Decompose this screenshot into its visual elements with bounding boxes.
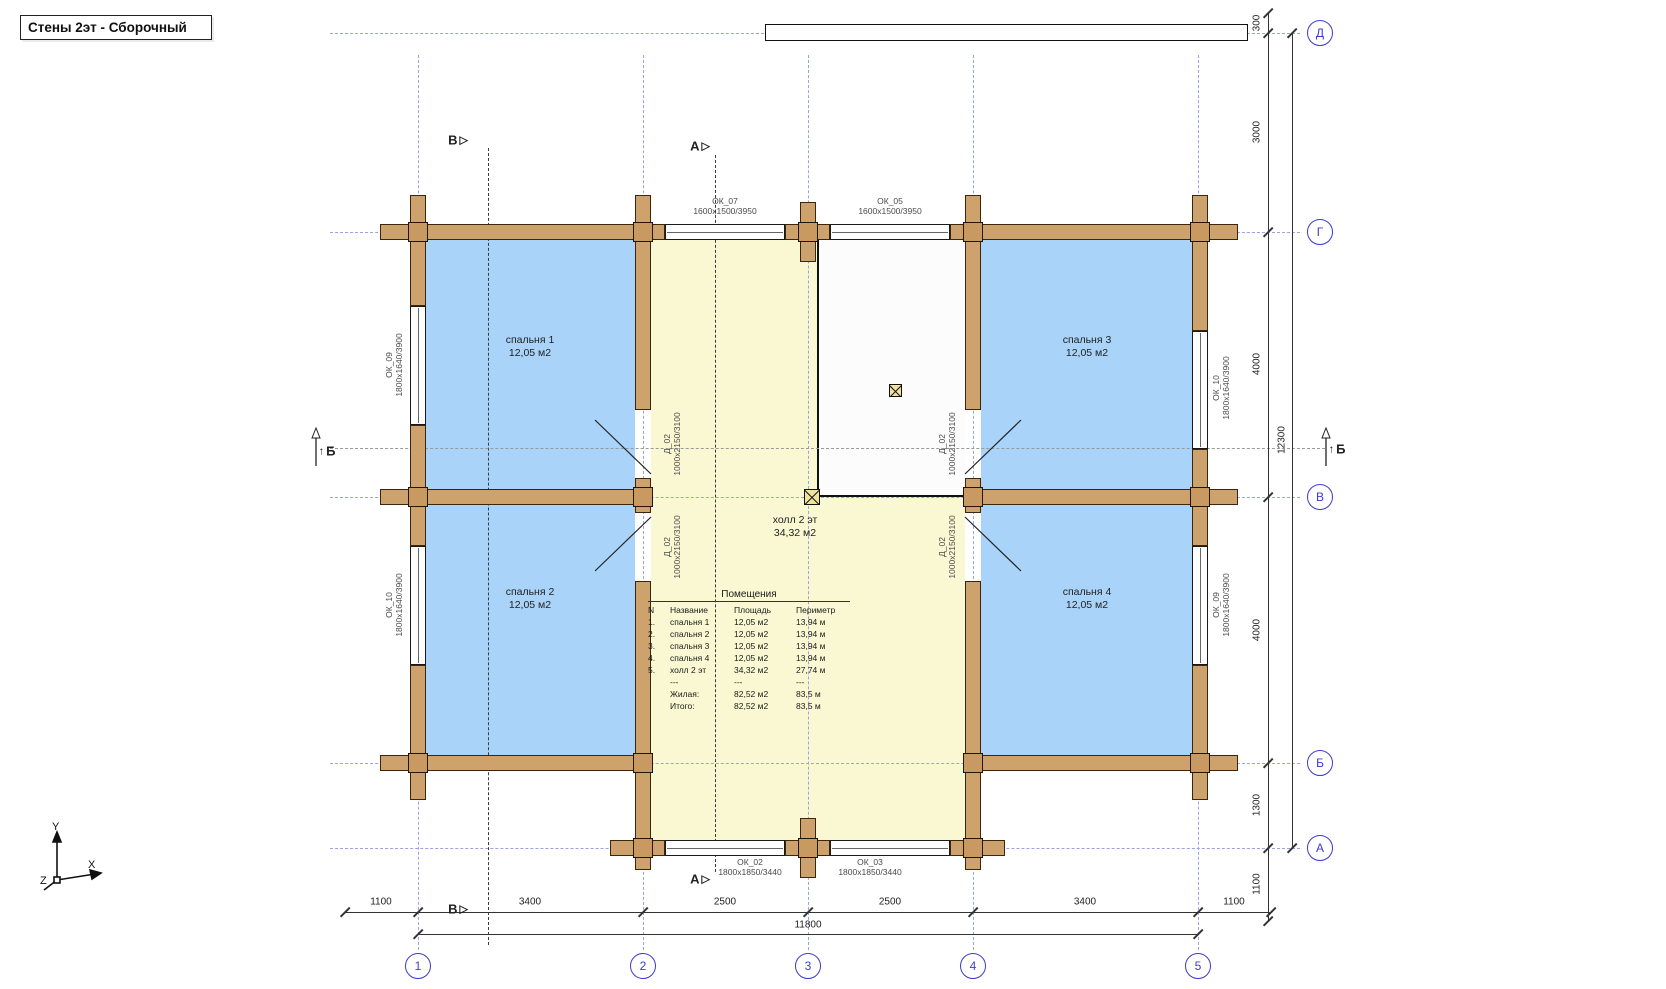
ucs-x-arrowhead [90, 870, 101, 879]
section-line-a [715, 155, 716, 872]
wall-beam-top [765, 24, 1248, 41]
table-row: 5. холл 2 эт 34,32 м2 27,74 м [648, 664, 850, 676]
section-marker-a-top: А ▷ [690, 139, 710, 154]
ucs-y-label: Y [52, 821, 60, 833]
cell-area: 82,52 м2 [734, 688, 796, 700]
dim-value: 1100 [370, 897, 392, 908]
axis-letter: В [1316, 490, 1324, 504]
cell-num: 2. [648, 628, 670, 640]
axis-number: 4 [970, 959, 977, 973]
ucs-y-arrowhead [53, 832, 61, 842]
door-id: Д_02 [937, 515, 947, 578]
ucs-x-axis [57, 874, 95, 880]
axis-letter: А [1316, 841, 1324, 855]
ucs-z-axis [44, 880, 57, 890]
cell-perimeter: 83,5 м [796, 700, 850, 712]
drawing-canvas: Стены 2эт - Сборочный [0, 0, 1666, 989]
axis-bubble-1: 1 [405, 953, 431, 979]
table-row: 4. спальня 4 12,05 м2 13,94 м [648, 652, 850, 664]
cell-name: спальня 3 [670, 640, 734, 652]
log-crossing [963, 753, 983, 773]
window-ok10-left [410, 546, 426, 665]
window-id: ОК_07 [693, 196, 756, 206]
wall-segment [410, 665, 426, 800]
cell-area: 82,52 м2 [734, 700, 796, 712]
up-arrow-icon: ↑ [319, 445, 325, 457]
window-id: ОК_03 [838, 857, 901, 867]
section-line-b [330, 448, 1325, 449]
section-arrow-icon: ▷ [701, 873, 709, 886]
room-name: спальня 2 [506, 586, 555, 599]
section-letter: В [448, 133, 457, 148]
log-crossing [633, 222, 653, 242]
door-label: Д_02 1000х2150/3100 [937, 412, 957, 475]
dim-total-value: 11800 [794, 920, 821, 931]
window-size: 1800х1640/3900 [394, 573, 404, 636]
section-letter: А [690, 139, 699, 154]
door-size: 1000х2150/3100 [947, 515, 957, 578]
window-ok05 [830, 224, 950, 240]
col-header-area: Площадь [734, 604, 796, 616]
room-bedroom-2 [426, 505, 635, 755]
cell-perimeter: 83,5 м [796, 688, 850, 700]
section-line-v [488, 148, 489, 945]
window-size: 1800х1850/3440 [718, 867, 781, 877]
log-crossing [408, 222, 428, 242]
section-marker-b-left: ↑ Б [319, 444, 336, 459]
room-bedroom-3 [981, 240, 1192, 489]
room-label-bedroom-2: спальня 2 12,05 м2 [506, 586, 555, 612]
table-row: 1. спальня 1 12,05 м2 13,94 м [648, 616, 850, 628]
window-label-ok09-left: ОК_09 1800х1640/3900 [384, 333, 404, 396]
dim-value: 2500 [714, 897, 736, 908]
axis-number: 1 [415, 959, 422, 973]
door-id: Д_02 [937, 412, 947, 475]
cell-area: 12,05 м2 [734, 652, 796, 664]
log-crossing [1190, 753, 1210, 773]
window-ok07 [665, 224, 785, 240]
log-crossing [963, 838, 983, 858]
axis-bubble-5: 5 [1185, 953, 1211, 979]
room-label-bedroom-4: спальня 4 12,05 м2 [1063, 586, 1112, 612]
axis-bubble-a: А [1307, 835, 1333, 861]
log-crossing [798, 838, 818, 858]
cell-num [648, 700, 670, 712]
table-row: 2. спальня 2 12,05 м2 13,94 м [648, 628, 850, 640]
room-bedroom-4 [981, 505, 1192, 755]
cell-num [648, 688, 670, 700]
section-letter: А [690, 872, 699, 887]
cell-area: 12,05 м2 [734, 628, 796, 640]
cell-num: 5. [648, 664, 670, 676]
room-label-bedroom-1: спальня 1 12,05 м2 [506, 334, 555, 360]
window-id: ОК_10 [1211, 356, 1221, 419]
window-label-ok05: ОК_05 1600х1500/3950 [858, 196, 921, 216]
window-id: ОК_09 [1211, 573, 1221, 636]
col-header-num: N [648, 604, 670, 616]
window-id: ОК_10 [384, 573, 394, 636]
window-ok03 [830, 840, 950, 856]
ucs-icon [44, 832, 101, 890]
window-label-ok10-right: ОК_10 1800х1640/3900 [1211, 356, 1231, 419]
door-label: Д_02 1000х2150/3100 [937, 515, 957, 578]
door-size: 1000х2150/3100 [672, 412, 682, 475]
cell-perimeter: 13,94 м [796, 652, 850, 664]
room-area: 12,05 м2 [506, 347, 555, 360]
axis-bubble-3: 3 [795, 953, 821, 979]
log-crossing [633, 487, 653, 507]
axis-number: 3 [805, 959, 812, 973]
log-crossing [1190, 487, 1210, 507]
window-size: 1800х1640/3900 [1221, 356, 1231, 419]
log-crossing [633, 838, 653, 858]
wall-segment [410, 425, 426, 546]
dim-line-right-total [1292, 33, 1293, 848]
cell-perimeter: 27,74 м [796, 664, 850, 676]
axis-bubble-4: 4 [960, 953, 986, 979]
cell-num [648, 676, 670, 688]
door-size: 1000х2150/3100 [672, 515, 682, 578]
room-name: холл 2 эт [773, 514, 818, 527]
cell-num: 3. [648, 640, 670, 652]
room-area: 34,32 м2 [773, 527, 818, 540]
log-crossing [963, 222, 983, 242]
window-size: 1800х1640/3900 [394, 333, 404, 396]
cell-name: --- [670, 676, 734, 688]
cell-perimeter: 13,94 м [796, 616, 850, 628]
cell-name: спальня 2 [670, 628, 734, 640]
axis-bubble-g: Г [1307, 219, 1333, 245]
column-marker [804, 489, 820, 505]
door-id: Д_02 [662, 515, 672, 578]
dim-line-right [1268, 13, 1269, 921]
room-name: спальня 1 [506, 334, 555, 347]
axis-number: 2 [640, 959, 647, 973]
room-area: 12,05 м2 [506, 599, 555, 612]
table-row-total-living: Жилая: 82,52 м2 83,5 м [648, 688, 850, 700]
col-header-perimeter: Периметр [796, 604, 850, 616]
cell-name: спальня 4 [670, 652, 734, 664]
window-ok10-right [1192, 331, 1208, 449]
log-crossing [408, 753, 428, 773]
section-b-arrowhead [1322, 428, 1330, 438]
section-marker-v-top: В ▷ [448, 133, 468, 148]
section-marker-b-right: ↑ Б [1329, 442, 1346, 457]
axis-letter: Г [1317, 225, 1324, 239]
table-row: 3. спальня 3 12,05 м2 13,94 м [648, 640, 850, 652]
log-crossing [1190, 222, 1210, 242]
window-size: 1600х1500/3950 [858, 206, 921, 216]
door-size: 1000х2150/3100 [947, 412, 957, 475]
wall-segment [1192, 195, 1208, 331]
door-label: Д_02 1000х2150/3100 [662, 412, 682, 475]
dim-value: 3400 [1074, 897, 1096, 908]
log-crossing [633, 753, 653, 773]
table-header-row: N Название Площадь Периметр [648, 604, 850, 616]
room-label-hall: холл 2 эт 34,32 м2 [773, 514, 818, 540]
section-letter: Б [326, 444, 335, 459]
section-marker-a-bottom: А ▷ [690, 872, 710, 887]
cell-name: спальня 1 [670, 616, 734, 628]
room-area: 12,05 м2 [1063, 347, 1112, 360]
dim-value: 1100 [1252, 873, 1263, 895]
col-header-name: Название [670, 604, 734, 616]
cell-num: 4. [648, 652, 670, 664]
log-crossing [798, 222, 818, 242]
column-marker [889, 384, 902, 397]
window-size: 1800х1640/3900 [1221, 573, 1231, 636]
cell-perimeter: 13,94 м [796, 628, 850, 640]
room-name: спальня 3 [1063, 334, 1112, 347]
cell-num: 1. [648, 616, 670, 628]
window-ok09-left [410, 306, 426, 425]
table-row: --- --- --- [648, 676, 850, 688]
wall-segment [965, 581, 981, 870]
ucs-z-label: Z [40, 875, 47, 887]
section-letter: Б [1336, 442, 1345, 457]
room-bedroom-1 [426, 240, 635, 489]
dim-line-bottom-total [418, 934, 1198, 935]
window-label-ok10-left: ОК_10 1800х1640/3900 [384, 573, 404, 636]
dim-value: 3000 [1252, 121, 1263, 143]
dim-value: 3400 [519, 897, 541, 908]
axis-bubble-d: Д [1307, 20, 1333, 46]
window-ok02 [665, 840, 785, 856]
window-label-ok07: ОК_07 1600х1500/3950 [693, 196, 756, 216]
section-arrow-icon: ▷ [459, 903, 467, 916]
cell-area: 12,05 м2 [734, 640, 796, 652]
cell-area: 34,32 м2 [734, 664, 796, 676]
axis-bubble-v: В [1307, 484, 1333, 510]
room-schedule-table: Помещения N Название Площадь Периметр 1.… [648, 589, 850, 712]
table-rule [648, 601, 850, 602]
dim-total-value: 12300 [1277, 426, 1288, 454]
window-label-ok02: ОК_02 1800х1850/3440 [718, 857, 781, 877]
window-id: ОК_05 [858, 196, 921, 206]
view-title: Стены 2эт - Сборочный [20, 15, 212, 40]
section-arrow-icon: ▷ [459, 134, 467, 147]
axis-letter: Б [1316, 756, 1324, 770]
cell-name: холл 2 эт [670, 664, 734, 676]
section-letter: В [448, 902, 457, 917]
section-marker-v-bottom: В ▷ [448, 902, 468, 917]
up-arrow-icon: ↑ [1329, 443, 1335, 455]
wall-segment [1192, 665, 1208, 800]
axis-bubble-2: 2 [630, 953, 656, 979]
cell-perimeter: --- [796, 676, 850, 688]
room-name: спальня 4 [1063, 586, 1112, 599]
dim-value: 2500 [879, 897, 901, 908]
table-row-total: Итого: 82,52 м2 83,5 м [648, 700, 850, 712]
room-area: 12,05 м2 [1063, 599, 1112, 612]
door-id: Д_02 [662, 412, 672, 475]
ucs-origin [54, 877, 60, 883]
window-id: ОК_02 [718, 857, 781, 867]
dim-value: 1300 [1252, 794, 1263, 816]
axis-bubble-b: Б [1307, 750, 1333, 776]
section-arrow-icon: ▷ [701, 140, 709, 153]
door-label: Д_02 1000х2150/3100 [662, 515, 682, 578]
log-crossing [963, 487, 983, 507]
axis-letter: Д [1316, 26, 1324, 40]
wall-segment [410, 195, 426, 306]
window-size: 1600х1500/3950 [693, 206, 756, 216]
window-label-ok09-right: ОК_09 1800х1640/3900 [1211, 573, 1231, 636]
dim-value: 1100 [1223, 897, 1245, 908]
window-id: ОК_09 [384, 333, 394, 396]
cell-area: 12,05 м2 [734, 616, 796, 628]
axis-number: 5 [1195, 959, 1202, 973]
section-b-arrowhead [312, 428, 320, 438]
cell-name: Жилая: [670, 688, 734, 700]
dim-value: 4000 [1252, 619, 1263, 641]
cell-perimeter: 13,94 м [796, 640, 850, 652]
room-label-bedroom-3: спальня 3 12,05 м2 [1063, 334, 1112, 360]
cell-area: --- [734, 676, 796, 688]
log-crossing [408, 487, 428, 507]
window-label-ok03: ОК_03 1800х1850/3440 [838, 857, 901, 877]
cell-name: Итого: [670, 700, 734, 712]
dim-value: 4000 [1252, 353, 1263, 375]
window-ok09-right [1192, 546, 1208, 665]
dim-value: 300 [1252, 15, 1263, 32]
ucs-x-label: X [88, 859, 96, 871]
table-title: Помещения [648, 589, 850, 600]
window-size: 1800х1850/3440 [838, 867, 901, 877]
